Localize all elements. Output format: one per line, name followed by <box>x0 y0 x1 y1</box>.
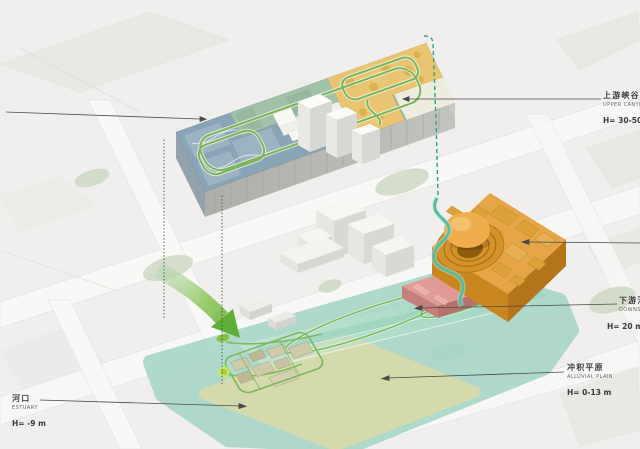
label-estuary-en: ESTUARY <box>12 406 46 411</box>
label-upper-canyon-zh: 上游峡谷 <box>603 92 640 100</box>
label-upper-canyon-en: UPPER CANYON <box>603 103 640 108</box>
site-illustration <box>0 0 640 449</box>
label-estuary-zh: 河口 <box>12 395 46 403</box>
label-alluvial-plain: 冲积平原 ALLUVIAL PLAIN H= 0-13 m <box>567 364 613 396</box>
label-downstream-en: DOWNSTREAM <box>619 308 640 313</box>
label-downstream: 下游河道 DOWNSTREAM H= 20 m <box>619 297 640 313</box>
label-alluvial-zh: 冲积平原 <box>567 364 613 372</box>
label-downstream-zh: 下游河道 <box>619 297 640 305</box>
label-upper-canyon: 上游峡谷 UPPER CANYON H= 30-50 m <box>603 92 640 124</box>
label-upper-canyon-height: H= 30-50 m <box>603 117 640 125</box>
site-diagram: 上游峡谷 UPPER CANYON H= 30-50 m 下游河道 DOWNST… <box>0 0 640 449</box>
label-downstream-height: H= 20 m <box>607 323 640 331</box>
label-estuary: 河口 ESTUARY H= -9 m <box>12 395 46 427</box>
label-estuary-height: H= -9 m <box>12 420 46 428</box>
label-alluvial-height: H= 0-13 m <box>567 389 613 397</box>
label-alluvial-en: ALLUVIAL PLAIN <box>567 375 613 380</box>
